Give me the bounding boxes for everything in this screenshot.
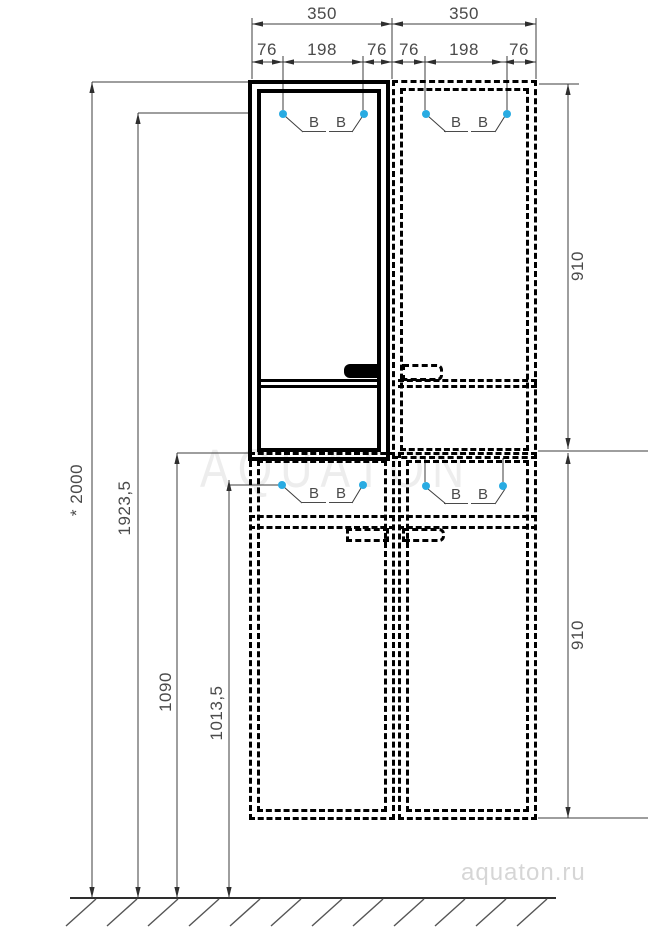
b-callout-8: B [471, 486, 495, 504]
dim-height-1923: 1923,5 [115, 481, 135, 536]
dim-height-1090: 1090 [156, 672, 176, 712]
cabinet-upper-right-inner-frame [400, 88, 529, 451]
dim-height-2000: * 2000 [67, 464, 87, 516]
dim-segment-5: 198 [449, 40, 479, 60]
technical-drawing-canvas: AQUATON aquaton.ru [0, 0, 655, 927]
b-callout-5: B [302, 485, 326, 503]
cabinet-upper-left-door-bottom-line [261, 379, 377, 382]
b-callout-6: B [329, 485, 353, 503]
cabinet-upper-right-shelf-line [398, 385, 537, 388]
cabinet-upper-left-inner-frame [257, 89, 381, 452]
cabinet-lower-left-inner-frame [257, 460, 387, 812]
dim-segment-3: 76 [367, 40, 387, 60]
ground-hatch [66, 899, 547, 926]
cabinet-lower-left-top-panel-line [249, 515, 395, 518]
dim-segment-4: 76 [399, 40, 419, 60]
b-callout-2: B [329, 114, 353, 132]
dim-height-910-lower: 910 [568, 620, 588, 650]
cabinet-lower-right-inner-frame [406, 460, 529, 812]
b-callout-4: B [471, 114, 495, 132]
dim-height-910-upper: 910 [568, 251, 588, 281]
cabinet-upper-left-shelf-line [261, 385, 377, 388]
b-callout-3: B [444, 114, 468, 132]
cabinet-lower-left-handle [346, 528, 389, 542]
cabinet-upper-left-handle [344, 364, 381, 378]
cabinet-upper-right-handle [402, 364, 443, 381]
b-callout-1: B [302, 114, 326, 132]
cabinet-lower-right-handle [402, 528, 445, 542]
dim-height-1013: 1013,5 [207, 686, 227, 741]
dim-segment-2: 198 [307, 40, 337, 60]
b-callout-7: B [444, 486, 468, 504]
dim-segment-6: 76 [509, 40, 529, 60]
cabinet-lower-right-top-panel-line [398, 515, 537, 518]
dim-width-left: 350 [307, 4, 337, 24]
dim-segment-1: 76 [257, 40, 277, 60]
dim-width-right: 350 [449, 4, 479, 24]
